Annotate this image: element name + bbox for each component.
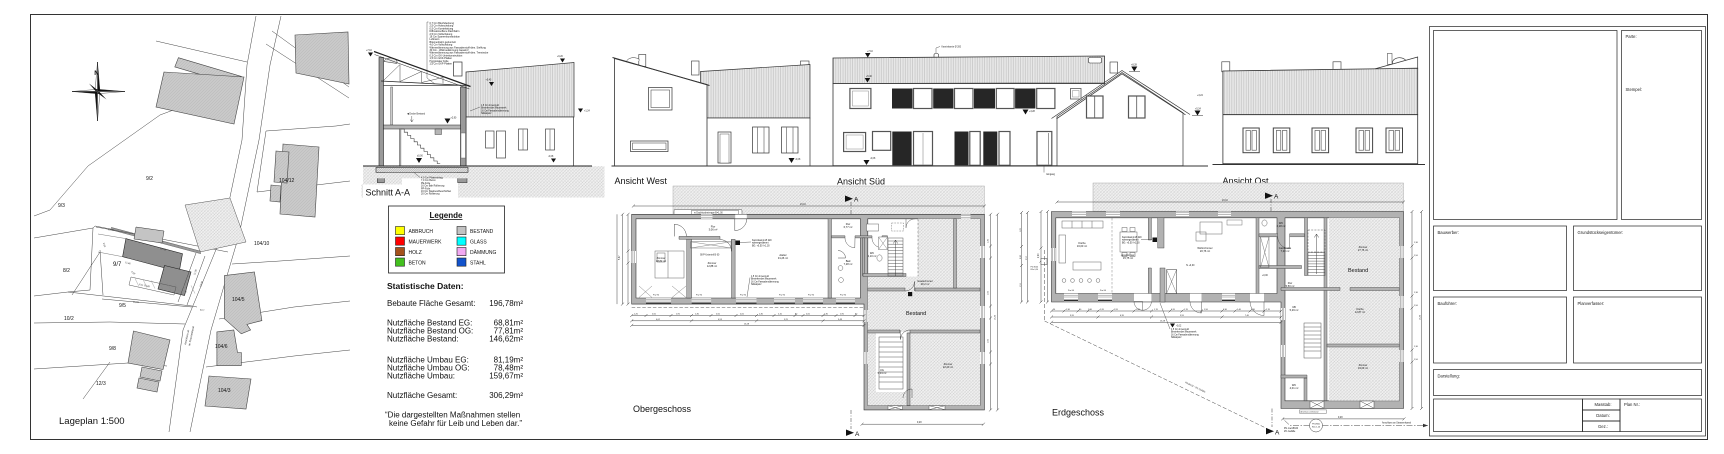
svg-text:5,47: 5,47 <box>619 255 621 260</box>
svg-text:Planverfasser:: Planverfasser: <box>1578 301 1605 306</box>
svg-text:196,78m²: 196,78m² <box>489 299 523 308</box>
svg-text:GLASS: GLASS <box>470 240 487 246</box>
svg-text:Bauführer:: Bauführer: <box>1438 301 1458 306</box>
svg-text:A: A <box>1274 194 1279 201</box>
svg-text:Ansicht West: Ansicht West <box>615 176 668 186</box>
svg-text:Prw 90: Prw 90 <box>779 294 785 297</box>
svg-text:+5,40: +5,40 <box>866 76 873 78</box>
svg-text:PG met Ø100: PG met Ø100 <box>1284 427 1299 430</box>
svg-text:Nutzfläche Umbau:: Nutzfläche Umbau: <box>387 372 455 381</box>
svg-text:6,77 m²: 6,77 m² <box>844 225 853 229</box>
svg-text:±0,00: ±0,00 <box>417 156 423 158</box>
svg-text:15,75 m²: 15,75 m² <box>1123 256 1133 260</box>
svg-text:KDu 0,50: KDu 0,50 <box>1031 269 1039 271</box>
svg-text:7,28 m²: 7,28 m² <box>1281 249 1290 253</box>
svg-text:2,20: 2,20 <box>1038 253 1040 258</box>
svg-text:Prw 90: Prw 90 <box>1100 289 1106 292</box>
svg-text:BG: +0,50 /+1,30: BG: +0,50 /+1,30 <box>1122 242 1140 244</box>
svg-text:Kaminkamin Ø 200: Kaminkamin Ø 200 <box>942 47 962 49</box>
svg-text:Erdgeschoss: Erdgeschoss <box>1052 408 1105 418</box>
svg-text:12/3: 12/3 <box>96 381 106 387</box>
svg-text:16,28: 16,28 <box>1160 320 1166 322</box>
svg-text:159,67m²: 159,67m² <box>489 372 523 381</box>
svg-text:HOLZ: HOLZ <box>409 250 422 256</box>
svg-text:Bestehendes Mauerwerk: Bestehendes Mauerwerk <box>481 107 507 110</box>
svg-text:104/12: 104/12 <box>279 178 295 184</box>
svg-text:40,2 m²: 40,2 m² <box>921 282 930 286</box>
svg-text:5,04 m²: 5,04 m² <box>878 371 887 375</box>
svg-text:9,28: 9,28 <box>917 422 922 424</box>
svg-text:Schnitt A-A: Schnitt A-A <box>366 188 411 198</box>
svg-text:keine Gefahr für Leib und Lebe: keine Gefahr für Leib und Leben dar.” <box>389 419 522 428</box>
svg-text:12,87 m²: 12,87 m² <box>1355 310 1365 314</box>
svg-text:Lageplan 1:500: Lageplan 1:500 <box>59 416 125 427</box>
svg-text:104/10: 104/10 <box>254 241 270 247</box>
svg-text:23,10: 23,10 <box>1222 200 1228 202</box>
svg-text:Silikatputz: Silikatputz <box>751 283 762 286</box>
svg-text:9/7: 9/7 <box>113 262 122 268</box>
svg-text:Parte:: Parte: <box>1626 34 1637 39</box>
svg-text:Grundstückseigentümer:: Grundstückseigentümer: <box>1578 230 1624 235</box>
svg-text:Silikatputz: Silikatputz <box>1171 336 1182 339</box>
svg-text:STAHL: STAHL <box>470 261 486 267</box>
svg-text:306,29m²: 306,29m² <box>489 391 523 400</box>
svg-text:27,76 m²: 27,76 m² <box>1358 248 1368 252</box>
svg-text:4,10 m²: 4,10 m² <box>868 254 877 258</box>
svg-text:BESTAND: BESTAND <box>470 229 494 235</box>
svg-text:-0,08: -0,08 <box>795 159 801 161</box>
svg-text:Nutzfläche Bestand:: Nutzfläche Bestand: <box>387 335 459 344</box>
svg-text:Obergeschoss: Obergeschoss <box>633 404 692 414</box>
svg-text:20 Cm Rollierung: 20 Cm Rollierung <box>421 193 440 196</box>
svg-text:Kaminkamin Ø 220: Kaminkamin Ø 220 <box>1122 237 1142 239</box>
svg-text:+2,90: +2,90 <box>451 118 458 120</box>
svg-text:Bebaute Fläche Gesamt:: Bebaute Fläche Gesamt: <box>387 299 476 308</box>
svg-text:Plan Nr.:: Plan Nr.: <box>1624 402 1640 407</box>
svg-text:Nutzfläche Gesamt:: Nutzfläche Gesamt: <box>387 391 457 400</box>
svg-text:A: A <box>855 431 860 438</box>
svg-text:Stempel:: Stempel: <box>1626 87 1643 92</box>
svg-text:146,62m²: 146,62m² <box>489 335 523 344</box>
svg-text:1,5 Cm GKF-Platten: 1,5 Cm GKF-Platten <box>430 63 453 66</box>
svg-text:BETON: BETON <box>409 261 427 267</box>
svg-text:Prw 90: Prw 90 <box>840 294 846 297</box>
svg-text:Datum:: Datum: <box>1596 413 1610 418</box>
svg-text:Statistische Daten:: Statistische Daten: <box>387 281 464 291</box>
svg-text:ABBRUCH: ABBRUCH <box>409 229 434 235</box>
svg-text:Prw 90: Prw 90 <box>1068 289 1074 292</box>
svg-text:DÄMMUNG: DÄMMUNG <box>470 249 496 256</box>
svg-text:Kaminkamin Ø 220: Kaminkamin Ø 220 <box>752 240 772 242</box>
svg-text:12,88 m²: 12,88 m² <box>707 264 717 268</box>
svg-text:A: A <box>854 197 859 204</box>
svg-text:Ansicht Süd: Ansicht Süd <box>837 177 885 187</box>
svg-text:1,5 Cm Innenputz: 1,5 Cm Innenputz <box>751 275 770 278</box>
svg-text:SKP-Unterteil B 60: SKP-Unterteil B 60 <box>700 254 720 257</box>
svg-text:16 Cm Fassadendämmung: 16 Cm Fassadendämmung <box>1171 334 1199 336</box>
svg-text:Bestehendes Mauerwerk: Bestehendes Mauerwerk <box>1171 331 1197 334</box>
svg-text:Bestand: Bestand <box>1348 268 1368 274</box>
svg-text:9,28: 9,28 <box>1338 417 1343 419</box>
svg-text:Darstellung:: Darstellung: <box>1438 374 1460 379</box>
svg-text:Silikatputz: Silikatputz <box>481 112 492 115</box>
svg-text:Bestehendes Mauerwerk: Bestehendes Mauerwerk <box>751 278 777 281</box>
svg-text:1,5 Cm Innenputz: 1,5 Cm Innenputz <box>1171 328 1190 331</box>
svg-text:Gez.:: Gez.: <box>1598 424 1608 429</box>
svg-text:-0,02: -0,02 <box>1176 326 1182 328</box>
svg-text:16,00 m²: 16,00 m² <box>1077 244 1087 248</box>
svg-text:+5,43: +5,43 <box>486 80 493 82</box>
svg-text:13,40: 13,40 <box>1420 314 1422 320</box>
svg-text:104/3: 104/3 <box>218 388 231 394</box>
svg-text:+7,10: +7,10 <box>366 50 373 52</box>
svg-text:A: A <box>1275 429 1280 436</box>
svg-text:Anschluss an Bestand: Anschluss an Bestand <box>1301 411 1319 414</box>
svg-text:+1,24: +1,24 <box>584 111 591 113</box>
svg-text:9/2: 9/2 <box>146 176 153 182</box>
svg-text:9/3: 9/3 <box>58 203 65 209</box>
svg-text:Prw 90: Prw 90 <box>696 294 702 297</box>
svg-text:10/2: 10/2 <box>64 316 74 322</box>
svg-text:2,18 m²: 2,18 m² <box>1277 224 1286 228</box>
svg-text:MAUERWERK: MAUERWERK <box>409 240 443 246</box>
svg-text:⇅ +0,00: ⇅ +0,00 <box>1186 264 1195 267</box>
svg-text:5,50 m²: 5,50 m² <box>1286 284 1295 288</box>
svg-text:13,40: 13,40 <box>995 314 997 320</box>
svg-text:18,82 m²: 18,82 m² <box>656 259 666 263</box>
svg-text:16 Cm Fassadendämmung: 16 Cm Fassadendämmung <box>481 110 509 112</box>
svg-text:31,26 m²: 31,26 m² <box>778 256 788 260</box>
svg-text:◀ Decke Bestand: ◀ Decke Bestand <box>407 113 426 116</box>
svg-text:23,10: 23,10 <box>800 204 806 206</box>
svg-text:Eingang: Eingang <box>1047 174 1056 176</box>
svg-text:Anschluss an Strassenkanal: Anschluss an Strassenkanal <box>1382 422 1411 425</box>
svg-text:+8,28: +8,28 <box>1131 65 1138 67</box>
svg-text:Masstab:: Masstab: <box>1595 402 1612 407</box>
svg-text:Legende: Legende <box>430 211 463 220</box>
svg-text:19,09 m²: 19,09 m² <box>1358 366 1368 370</box>
svg-text:5,29 m²: 5,29 m² <box>1290 308 1299 312</box>
svg-text:1,5 Cm Innenputz: 1,5 Cm Innenputz <box>481 104 500 107</box>
svg-text:Prw 90: Prw 90 <box>808 294 814 297</box>
svg-text:16,28: 16,28 <box>744 323 750 325</box>
svg-text:+6,20: +6,20 <box>557 56 564 58</box>
svg-text:PS Ø100: PS Ø100 <box>1312 424 1320 426</box>
svg-text:N: N <box>94 70 99 77</box>
svg-text:+7,10: +7,10 <box>867 51 874 53</box>
svg-text:wärmegedämmt: wärmegedämmt <box>752 242 769 245</box>
svg-text:16 Cm Fassadendämmung: 16 Cm Fassadendämmung <box>751 281 779 283</box>
svg-text:8/2: 8/2 <box>63 268 70 274</box>
svg-text:2% Gefälle: 2% Gefälle <box>1284 431 1296 433</box>
svg-text:3,06 m²: 3,06 m² <box>709 228 718 232</box>
svg-text:+3,28: +3,28 <box>1029 111 1036 113</box>
svg-text:+3,24: +3,24 <box>1197 95 1204 97</box>
svg-text:104/6: 104/6 <box>215 344 228 350</box>
svg-text:22,20 m²: 22,20 m² <box>943 365 953 369</box>
svg-text:20,76 m²: 20,76 m² <box>1200 249 1210 253</box>
svg-text:-0,08: -0,08 <box>548 156 554 158</box>
svg-text:+5,24: +5,24 <box>1195 109 1202 111</box>
svg-text:Bestand: Bestand <box>906 311 926 317</box>
svg-text:9/5: 9/5 <box>119 303 126 309</box>
svg-text:104/5: 104/5 <box>232 297 245 303</box>
svg-text:4,01 m²: 4,01 m² <box>1290 386 1299 390</box>
svg-text:+0,00: +0,00 <box>1262 275 1269 277</box>
svg-text:Bauwerber:: Bauwerber: <box>1438 230 1459 235</box>
svg-text:-0,08: -0,08 <box>870 158 876 160</box>
svg-text:Prw 90: Prw 90 <box>653 294 659 297</box>
svg-text:Prw 90: Prw 90 <box>740 294 746 297</box>
svg-text:wärmegedämmt: wärmegedämmt <box>1122 239 1139 242</box>
svg-text:9/8: 9/8 <box>109 346 116 352</box>
svg-text:BG: +0,50 /+1,30: BG: +0,50 /+1,30 <box>752 245 770 247</box>
svg-text:KDu 1,26: KDu 1,26 <box>1312 427 1320 429</box>
svg-text:7,28 m²: 7,28 m² <box>844 262 853 266</box>
